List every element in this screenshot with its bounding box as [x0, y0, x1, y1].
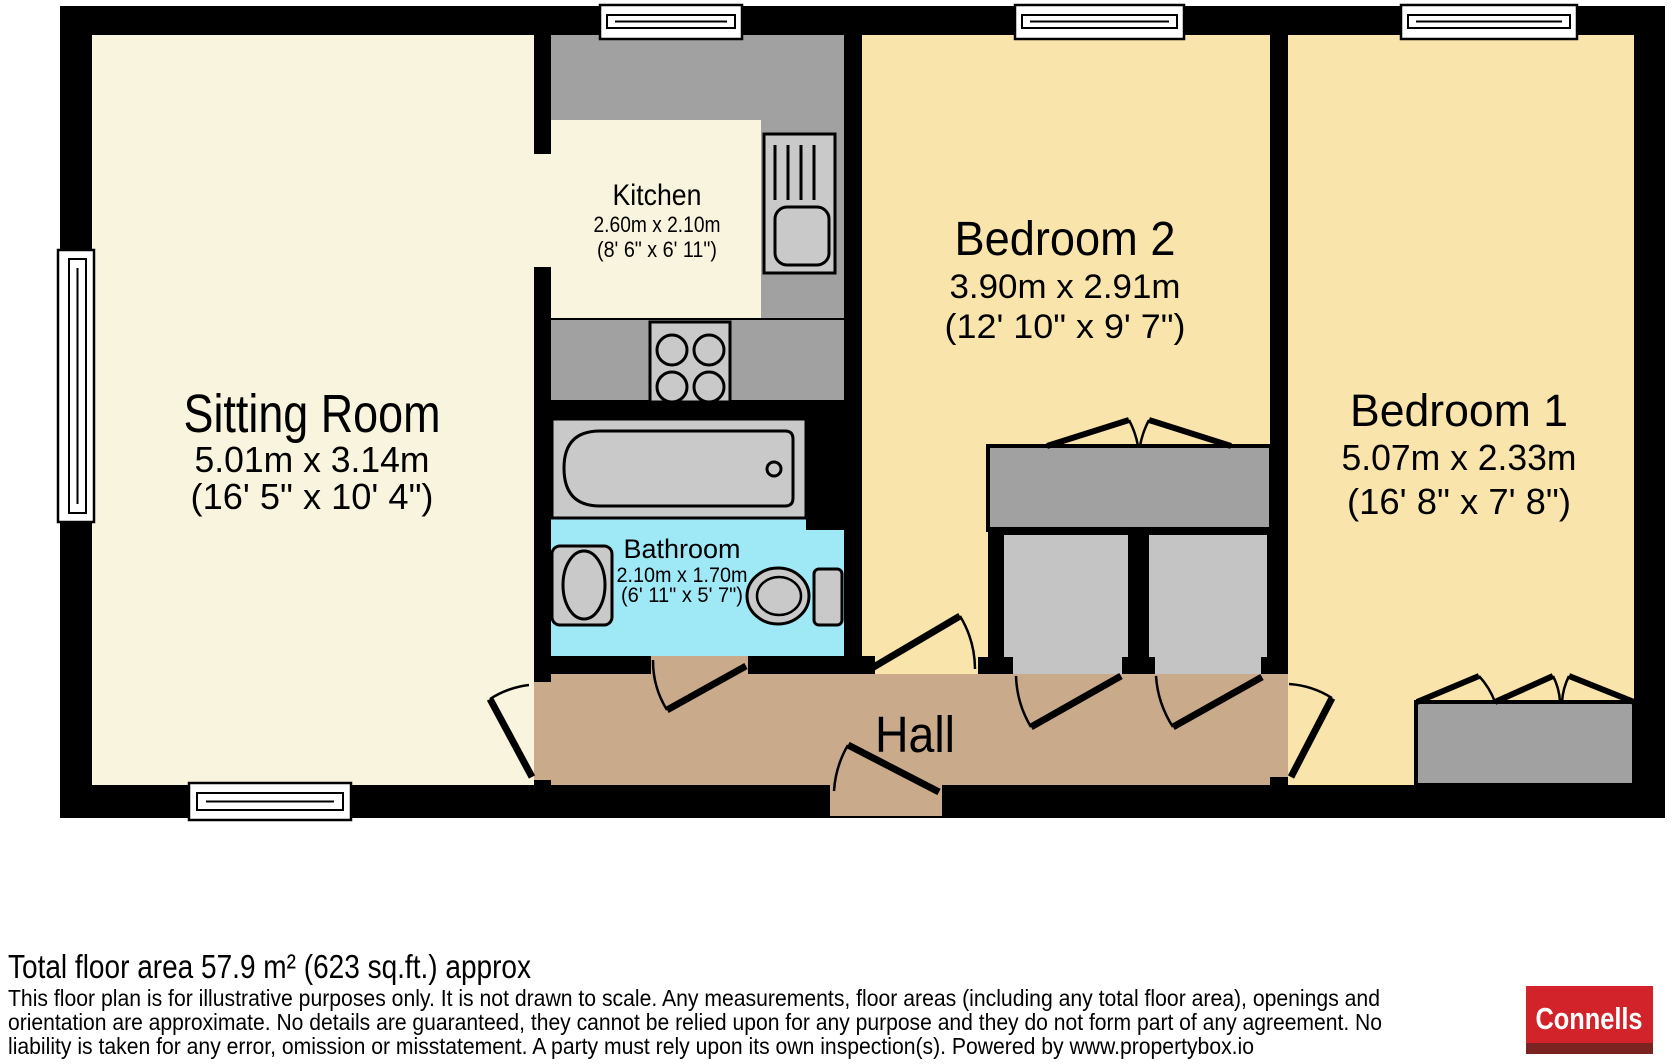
svg-text:3.90m x 2.91m: 3.90m x 2.91m [950, 268, 1181, 306]
svg-text:(16' 5" x 10' 4"): (16' 5" x 10' 4") [191, 476, 434, 517]
svg-text:liability is taken for any err: liability is taken for any error, omissi… [8, 1033, 1254, 1059]
svg-text:This floor plan is for illustr: This floor plan is for illustrative purp… [8, 985, 1380, 1011]
svg-text:(16' 8" x 7' 8"): (16' 8" x 7' 8") [1347, 481, 1571, 522]
svg-text:Sitting Room: Sitting Room [184, 384, 441, 444]
svg-text:Bedroom 1: Bedroom 1 [1350, 385, 1568, 436]
svg-text:Bedroom 2: Bedroom 2 [955, 213, 1176, 266]
svg-text:(12' 10" x 9' 7"): (12' 10" x 9' 7") [945, 308, 1186, 346]
svg-text:5.07m x 2.33m: 5.07m x 2.33m [1342, 437, 1577, 478]
svg-text:orientation are approximate. N: orientation are approximate. No details … [8, 1009, 1382, 1035]
svg-text:Kitchen: Kitchen [613, 179, 702, 212]
svg-text:Bathroom: Bathroom [624, 534, 741, 564]
svg-text:Total floor area 57.9 m² (623: Total floor area 57.9 m² (623 sq.ft.) ap… [8, 949, 531, 986]
svg-text:Connells: Connells [1536, 1001, 1643, 1036]
svg-text:2.60m x 2.10m: 2.60m x 2.10m [594, 212, 721, 237]
svg-text:Hall: Hall [875, 706, 955, 763]
svg-text:(8' 6" x 6' 11"): (8' 6" x 6' 11") [597, 237, 717, 262]
svg-text:(6' 11" x 5' 7"): (6' 11" x 5' 7") [621, 584, 743, 607]
svg-text:5.01m x 3.14m: 5.01m x 3.14m [195, 439, 430, 480]
